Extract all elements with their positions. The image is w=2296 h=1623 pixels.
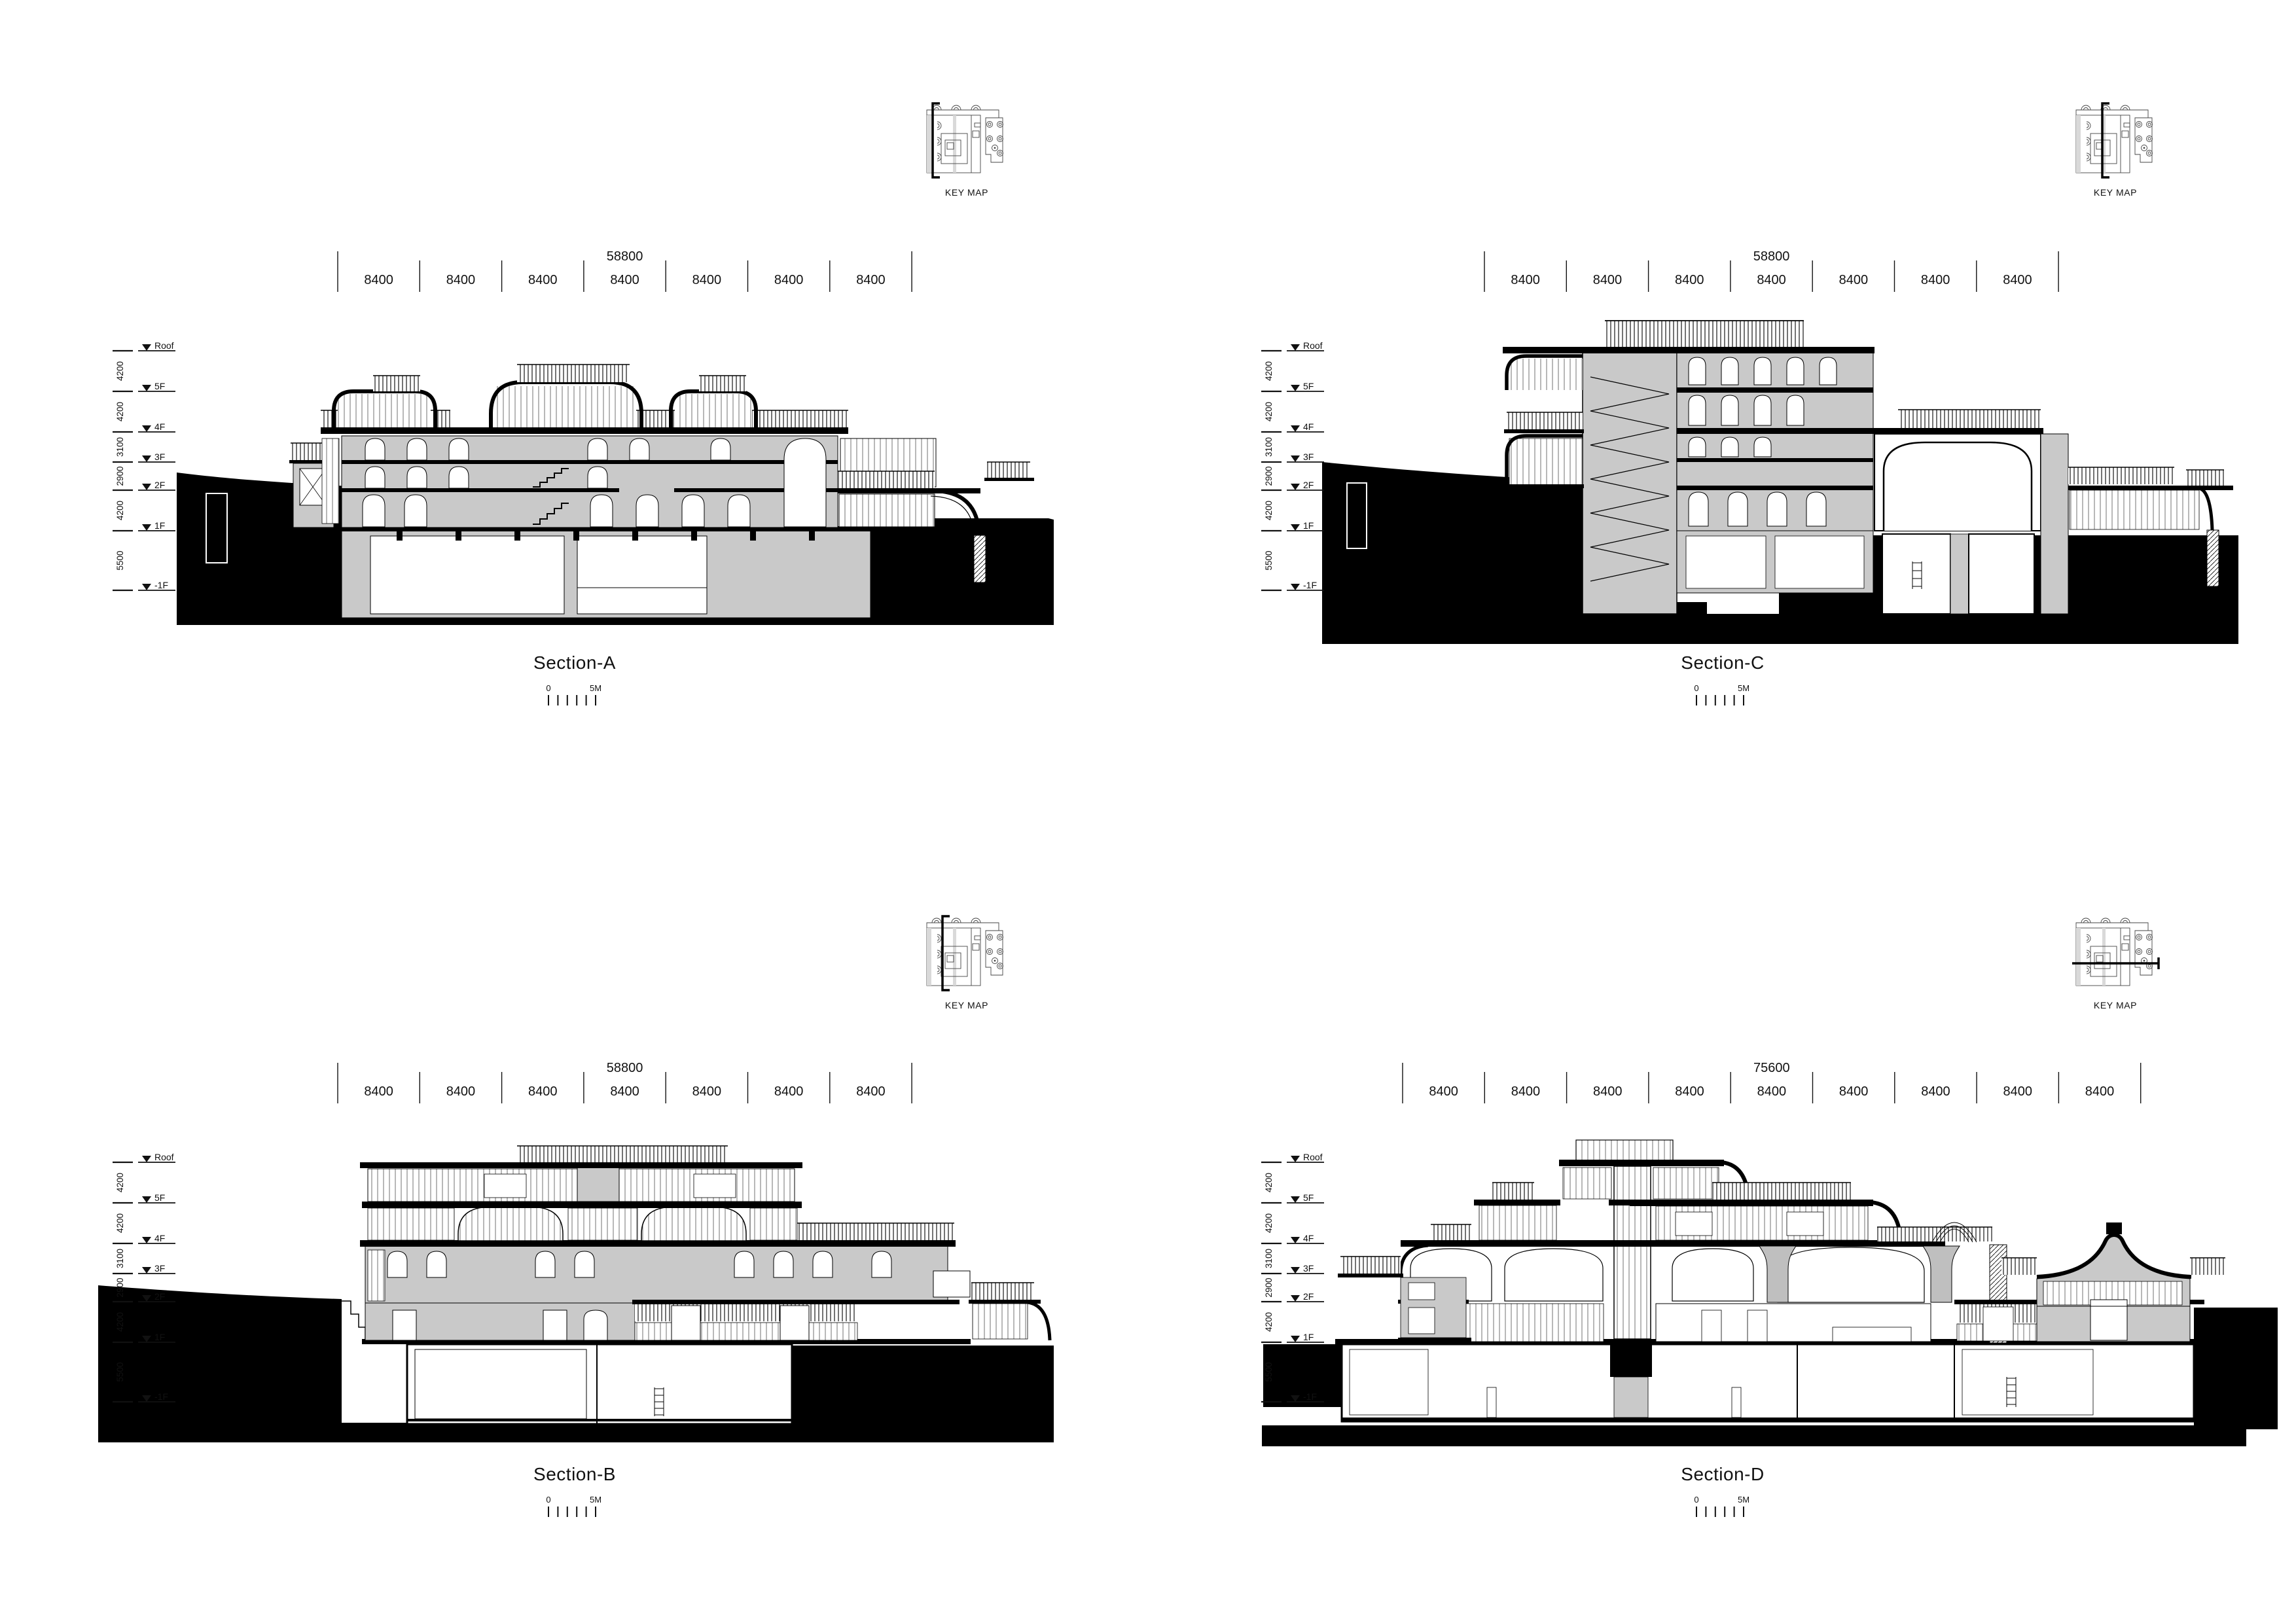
level-label: 1F <box>1303 520 1314 531</box>
bay-dimension: 8400 <box>1839 1084 1868 1099</box>
overall-dimension: 58800 <box>607 1063 643 1075</box>
level-label: 1F <box>154 1332 165 1342</box>
level-label: 2F <box>1303 1291 1314 1302</box>
bay-dimension: 8400 <box>610 273 639 287</box>
level-marker-triangle-icon <box>1291 1395 1300 1402</box>
bay-dimension: 8400 <box>1839 273 1868 287</box>
level-spacing-dimension: 4200 <box>115 1312 125 1332</box>
level-spacing-dimension: 4200 <box>1264 1312 1274 1332</box>
level-marker-triangle-icon <box>1291 385 1300 391</box>
level-label: 4F <box>1303 421 1314 432</box>
section-title: Section-C <box>1618 652 1827 673</box>
level-spacing-dimension: 3100 <box>115 1249 125 1268</box>
scale-zero-label: 0 <box>1694 683 1698 693</box>
bay-dimension: 8400 <box>692 1084 721 1099</box>
scale-5m-label: 5M <box>1738 1495 1749 1505</box>
key-map-plan <box>927 105 1003 173</box>
bay-dimension: 8400 <box>1593 273 1622 287</box>
bay-dimension: 8400 <box>1921 1084 1950 1099</box>
bay-dimension: 8400 <box>1429 1084 1458 1099</box>
level-marker-triangle-icon <box>142 344 151 351</box>
scale-bar: 05M <box>531 1495 617 1522</box>
bay-dimension: 8400 <box>2085 1084 2114 1099</box>
level-label: 3F <box>1303 1263 1314 1274</box>
bay-dimension: 8400 <box>1675 1084 1704 1099</box>
drawing-sheet: Section-A Section-C Section-B Section-D … <box>0 0 2296 1623</box>
scale-zero-label: 0 <box>546 683 550 693</box>
level-label: 1F <box>1303 1332 1314 1342</box>
level-label: Roof <box>1303 340 1323 351</box>
bay-dimension: 8400 <box>528 273 557 287</box>
key-map-label: KEY MAP <box>921 1000 1013 1010</box>
section-title: Section-A <box>470 652 679 673</box>
level-spacing-dimension: 4200 <box>115 1173 125 1192</box>
level-spacing-dimension: 4200 <box>115 402 125 421</box>
bay-dimension: 8400 <box>610 1084 639 1099</box>
level-label: 5F <box>1303 381 1314 391</box>
level-label: 4F <box>154 1233 165 1243</box>
level-label: 4F <box>1303 1233 1314 1243</box>
section-d-drawing <box>1244 1139 2278 1450</box>
level-marker-triangle-icon <box>142 1156 151 1162</box>
section-c-drawing <box>1244 314 2238 648</box>
level-label: 5F <box>1303 1192 1314 1203</box>
bay-dimension: 8400 <box>1757 1084 1786 1099</box>
level-marker-triangle-icon <box>142 584 151 590</box>
section-a-drawing <box>177 327 1054 632</box>
level-spacing-dimension: 5500 <box>1264 1362 1274 1382</box>
section-cut-line <box>2102 103 2109 177</box>
bay-dimension: 8400 <box>2003 1084 2032 1099</box>
level-label: Roof <box>154 1152 174 1162</box>
bay-dimension: 8400 <box>446 1084 475 1099</box>
bay-dimension: 8400 <box>1511 273 1539 287</box>
level-spacing-dimension: 4200 <box>1264 1173 1274 1192</box>
scale-5m-label: 5M <box>590 683 601 693</box>
level-spacing-dimension: 3100 <box>1264 1249 1274 1268</box>
overall-dimension: 75600 <box>1753 1063 1790 1075</box>
dimension-chain: 7560084008400840084008400840084008400840… <box>1395 1063 2149 1109</box>
scale-5m-label: 5M <box>1738 683 1749 693</box>
level-label: 2F <box>154 1291 165 1302</box>
level-label: 3F <box>1303 452 1314 462</box>
level-spacing-dimension: 4200 <box>115 1213 125 1233</box>
bay-dimension: 8400 <box>1511 1084 1540 1099</box>
level-label: -1F <box>154 580 168 590</box>
level-marker-triangle-icon <box>1291 344 1300 351</box>
dimension-chain: 588008400840084008400840084008400 <box>330 1063 920 1109</box>
bay-dimension: 8400 <box>856 1084 885 1099</box>
level-marker-triangle-icon <box>1291 1196 1300 1203</box>
scale-zero-label: 0 <box>546 1495 550 1505</box>
level-spacing-dimension: 4200 <box>115 361 125 381</box>
level-spacing-dimension: 2900 <box>1264 466 1274 486</box>
dimension-chain: 588008400840084008400840084008400 <box>1477 251 2066 297</box>
level-marker-triangle-icon <box>1291 1156 1300 1162</box>
bay-dimension: 8400 <box>774 1084 803 1099</box>
level-spacing-dimension: 3100 <box>115 437 125 457</box>
section-cut-line <box>2072 957 2159 969</box>
level-marker-triangle-icon <box>142 1237 151 1243</box>
bay-dimension: 8400 <box>1675 273 1704 287</box>
level-markers: Roof42005F42004F31003F29002F42001F5500-1… <box>1261 323 1372 619</box>
level-label: 3F <box>154 1263 165 1274</box>
overall-dimension: 58800 <box>607 251 643 264</box>
scale-bar: 05M <box>531 683 617 711</box>
level-marker-triangle-icon <box>1291 1295 1300 1302</box>
bay-dimension: 8400 <box>1593 1084 1622 1099</box>
bay-dimension: 8400 <box>774 273 803 287</box>
level-marker-triangle-icon <box>1291 425 1300 432</box>
level-marker-triangle-icon <box>1291 484 1300 490</box>
level-spacing-dimension: 5500 <box>1264 550 1274 570</box>
level-spacing-dimension: 5500 <box>115 550 125 570</box>
level-marker-triangle-icon <box>142 524 151 531</box>
level-marker-triangle-icon <box>142 455 151 462</box>
bay-dimension: 8400 <box>1921 273 1950 287</box>
level-spacing-dimension: 2900 <box>115 1277 125 1297</box>
level-label: Roof <box>1303 1152 1323 1162</box>
level-label: -1F <box>1303 580 1317 590</box>
level-spacing-dimension: 4200 <box>1264 501 1274 520</box>
level-label: -1F <box>154 1391 168 1402</box>
level-label: 2F <box>154 480 165 490</box>
level-marker-triangle-icon <box>142 385 151 391</box>
section-cut-line <box>942 916 950 990</box>
key-map <box>2072 99 2164 181</box>
level-marker-triangle-icon <box>1291 1267 1300 1274</box>
level-marker-triangle-icon <box>142 484 151 490</box>
bay-dimension: 8400 <box>2003 273 2032 287</box>
scale-zero-label: 0 <box>1694 1495 1698 1505</box>
level-spacing-dimension: 4200 <box>1264 1213 1274 1233</box>
bay-dimension: 8400 <box>364 1084 393 1099</box>
scale-5m-label: 5M <box>590 1495 601 1505</box>
level-spacing-dimension: 2900 <box>1264 1277 1274 1297</box>
level-spacing-dimension: 4200 <box>1264 402 1274 421</box>
level-marker-triangle-icon <box>142 1196 151 1203</box>
level-spacing-dimension: 2900 <box>115 466 125 486</box>
level-label: 2F <box>1303 480 1314 490</box>
bay-dimension: 8400 <box>1757 273 1785 287</box>
overall-dimension: 58800 <box>1753 251 1790 264</box>
level-markers: Roof42005F42004F31003F29002F42001F5500-1… <box>113 323 224 619</box>
key-map-plan <box>2076 105 2153 173</box>
scale-bar: 05M <box>1679 1495 1765 1522</box>
key-map-plan <box>2076 918 2153 986</box>
key-map-label: KEY MAP <box>2070 1000 2161 1010</box>
level-marker-triangle-icon <box>1291 1237 1300 1243</box>
key-map-plan <box>927 918 1003 986</box>
bay-dimension: 8400 <box>528 1084 557 1099</box>
level-label: Roof <box>154 340 174 351</box>
scale-bar: 05M <box>1679 683 1765 711</box>
level-label: 4F <box>154 421 165 432</box>
level-markers: Roof42005F42004F31003F29002F42001F5500-1… <box>113 1135 224 1431</box>
level-marker-triangle-icon <box>142 425 151 432</box>
dimension-chain: 588008400840084008400840084008400 <box>330 251 920 297</box>
level-marker-triangle-icon <box>142 1267 151 1274</box>
section-b-drawing <box>98 1139 1054 1446</box>
level-spacing-dimension: 5500 <box>115 1362 125 1382</box>
bay-dimension: 8400 <box>692 273 721 287</box>
level-markers: Roof42005F42004F31003F29002F42001F5500-1… <box>1261 1135 1372 1431</box>
level-marker-triangle-icon <box>1291 1336 1300 1342</box>
level-marker-triangle-icon <box>142 1336 151 1342</box>
bay-dimension: 8400 <box>446 273 475 287</box>
bay-dimension: 8400 <box>856 273 885 287</box>
level-marker-triangle-icon <box>1291 455 1300 462</box>
level-spacing-dimension: 4200 <box>1264 361 1274 381</box>
level-marker-triangle-icon <box>142 1295 151 1302</box>
section-title: Section-D <box>1618 1464 1827 1485</box>
key-map <box>923 912 1014 994</box>
level-marker-triangle-icon <box>142 1395 151 1402</box>
level-label: 3F <box>154 452 165 462</box>
key-map <box>2072 912 2164 994</box>
level-label: -1F <box>1303 1391 1317 1402</box>
level-spacing-dimension: 4200 <box>115 501 125 520</box>
level-label: 5F <box>154 1192 165 1203</box>
level-marker-triangle-icon <box>1291 584 1300 590</box>
key-map-label: KEY MAP <box>2070 187 2161 198</box>
level-label: 5F <box>154 381 165 391</box>
level-marker-triangle-icon <box>1291 524 1300 531</box>
level-label: 1F <box>154 520 165 531</box>
key-map-label: KEY MAP <box>921 187 1013 198</box>
key-map <box>923 99 1014 181</box>
level-spacing-dimension: 3100 <box>1264 437 1274 457</box>
bay-dimension: 8400 <box>364 273 393 287</box>
section-title: Section-B <box>470 1464 679 1485</box>
